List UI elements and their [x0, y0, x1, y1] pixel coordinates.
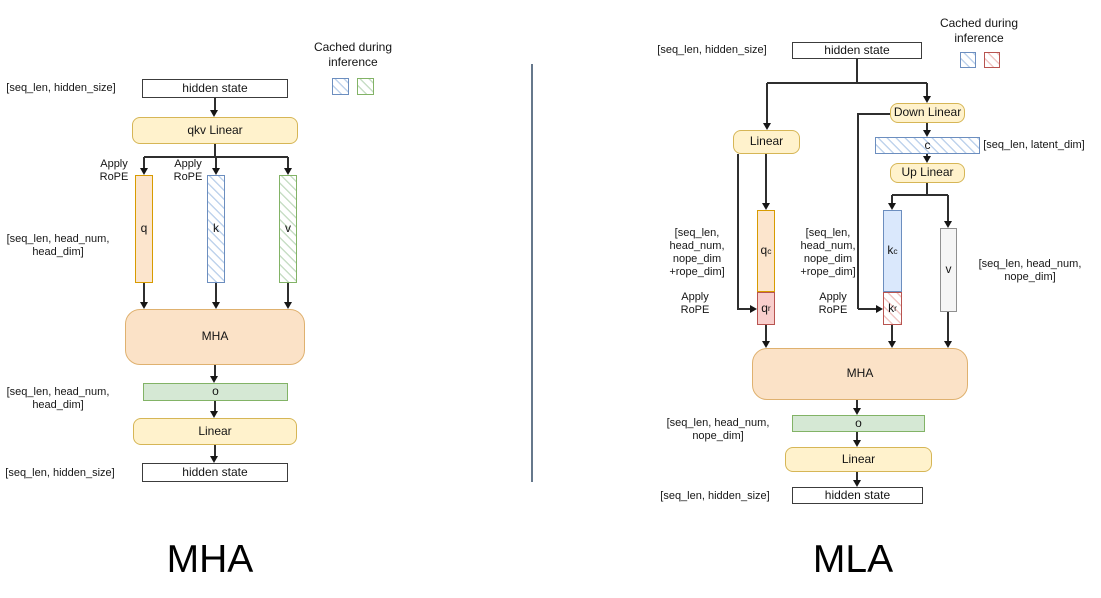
connector-line: [947, 195, 949, 221]
arrowhead: [212, 168, 220, 175]
connector-line: [856, 432, 858, 440]
connector-line: [947, 312, 949, 341]
arrowhead: [750, 305, 757, 313]
mha-apply-rope-k-label: Apply RoPE: [168, 158, 208, 184]
connector-line: [858, 308, 876, 310]
mla-q-shape-label: [seq_len, head_num, nope_dim +rope_dim]: [664, 227, 730, 279]
mha-legend-cached-v-swatch: [357, 78, 374, 95]
mla-kr-tensor: kr: [883, 292, 902, 325]
arrowhead: [140, 302, 148, 309]
mha-o-tensor: o: [143, 383, 288, 401]
arrowhead: [762, 341, 770, 348]
connector-line: [287, 157, 289, 168]
mha-attention-box: MHA: [125, 309, 305, 365]
arrowhead: [140, 168, 148, 175]
mha-q-tensor: q: [135, 175, 153, 283]
mla-o-shape-label: [seq_len, head_num, nope_dim]: [662, 417, 774, 443]
mha-mla-comparison-diagram: [seq_len, hidden_size] hidden state Cach…: [0, 0, 1101, 598]
mha-qkv-shape-label: [seq_len, head_num, head_dim]: [2, 233, 114, 259]
connector-line: [737, 154, 739, 309]
mha-k-tensor: k: [207, 175, 225, 283]
arrowhead: [923, 96, 931, 103]
arrowhead: [853, 440, 861, 447]
connector-line: [858, 113, 890, 115]
connector-line: [214, 445, 216, 456]
mla-hidden-state-input: hidden state: [792, 42, 922, 59]
qr-sub: r: [768, 304, 771, 313]
connector-line: [857, 113, 859, 309]
connector-line: [214, 401, 216, 411]
mla-down-linear-box: Down Linear: [890, 103, 965, 123]
arrowhead: [923, 130, 931, 137]
mha-v-tensor: v: [279, 175, 297, 283]
mla-legend-title: Cached during inference: [929, 16, 1029, 46]
mha-input-shape-label: [seq_len, hidden_size]: [0, 82, 122, 95]
mha-out-linear-box: Linear: [133, 418, 297, 445]
mla-v-shape-label: [seq_len, head_num, nope_dim]: [974, 258, 1086, 284]
connector-line: [856, 472, 858, 480]
mha-hidden-state-input: hidden state: [142, 79, 288, 98]
kc-sub: c: [893, 247, 897, 256]
arrowhead: [853, 408, 861, 415]
arrowhead: [944, 341, 952, 348]
mla-title: MLA: [788, 538, 918, 582]
kr-sub: r: [894, 304, 897, 313]
mla-up-linear-box: Up Linear: [890, 163, 965, 183]
arrowhead: [888, 203, 896, 210]
arrowhead: [923, 156, 931, 163]
mha-title: MHA: [145, 538, 275, 582]
mha-hidden-state-output: hidden state: [142, 463, 288, 482]
mla-legend-cached-c-swatch: [960, 52, 976, 68]
connector-line: [737, 308, 750, 310]
mla-v-tensor: v: [940, 228, 957, 312]
arrowhead: [876, 305, 883, 313]
connector-line: [287, 283, 289, 302]
arrowhead: [210, 110, 218, 117]
mha-legend-cached-k-swatch: [332, 78, 349, 95]
mla-o-tensor: o: [792, 415, 925, 432]
arrowhead: [944, 221, 952, 228]
mla-legend-cached-kr-swatch: [984, 52, 1000, 68]
mla-qr-tensor: qr: [757, 292, 775, 325]
connector-line: [143, 283, 145, 302]
mha-qkv-linear-box: qkv Linear: [132, 117, 298, 144]
arrowhead: [284, 168, 292, 175]
arrowhead: [210, 456, 218, 463]
mla-attention-box: MHA: [752, 348, 968, 400]
mha-o-shape-label: [seq_len, head_num, head_dim]: [2, 386, 114, 412]
connector-line: [215, 283, 217, 302]
mha-output-shape-label: [seq_len, hidden_size]: [0, 467, 120, 480]
qr-base: q: [761, 302, 768, 315]
arrowhead: [762, 203, 770, 210]
mla-q-linear-box: Linear: [733, 130, 800, 154]
connector-line: [856, 59, 858, 84]
mla-kc-tensor: kc: [883, 210, 902, 292]
connector-line: [766, 83, 768, 123]
connector-line: [765, 325, 767, 341]
arrowhead: [763, 123, 771, 130]
mla-hidden-state-output: hidden state: [792, 487, 923, 504]
mha-legend-title: Cached during inference: [303, 40, 403, 70]
divider-line: [531, 64, 533, 482]
mla-input-shape-label: [seq_len, hidden_size]: [647, 44, 777, 57]
connector-line: [891, 325, 893, 341]
arrowhead: [284, 302, 292, 309]
connector-line: [856, 400, 858, 408]
connector-line: [926, 123, 928, 130]
mla-latent-shape-label: [seq_len, latent_dim]: [979, 139, 1089, 152]
arrowhead: [212, 302, 220, 309]
connector-line: [765, 154, 767, 203]
connector-line: [892, 194, 948, 196]
arrowhead: [888, 341, 896, 348]
mla-k-shape-label: [seq_len, head_num, nope_dim +rope_dim]: [795, 227, 861, 279]
arrowhead: [210, 411, 218, 418]
connector-line: [926, 83, 928, 96]
qc-base: q: [761, 244, 768, 257]
arrowhead: [210, 376, 218, 383]
mla-out-linear-box: Linear: [785, 447, 932, 472]
connector-line: [891, 195, 893, 203]
qc-sub: c: [767, 247, 771, 256]
mha-apply-rope-q-label: Apply RoPE: [94, 158, 134, 184]
mla-qc-tensor: qc: [757, 210, 775, 292]
mla-apply-rope-q-label: Apply RoPE: [675, 291, 715, 317]
connector-line: [214, 365, 216, 376]
mla-latent-c-tensor: c: [875, 137, 980, 154]
mla-apply-rope-k-label: Apply RoPE: [813, 291, 853, 317]
connector-line: [143, 157, 145, 168]
connector-line: [767, 82, 927, 84]
connector-line: [215, 157, 217, 168]
mla-output-shape-label: [seq_len, hidden_size]: [650, 490, 780, 503]
arrowhead: [853, 480, 861, 487]
